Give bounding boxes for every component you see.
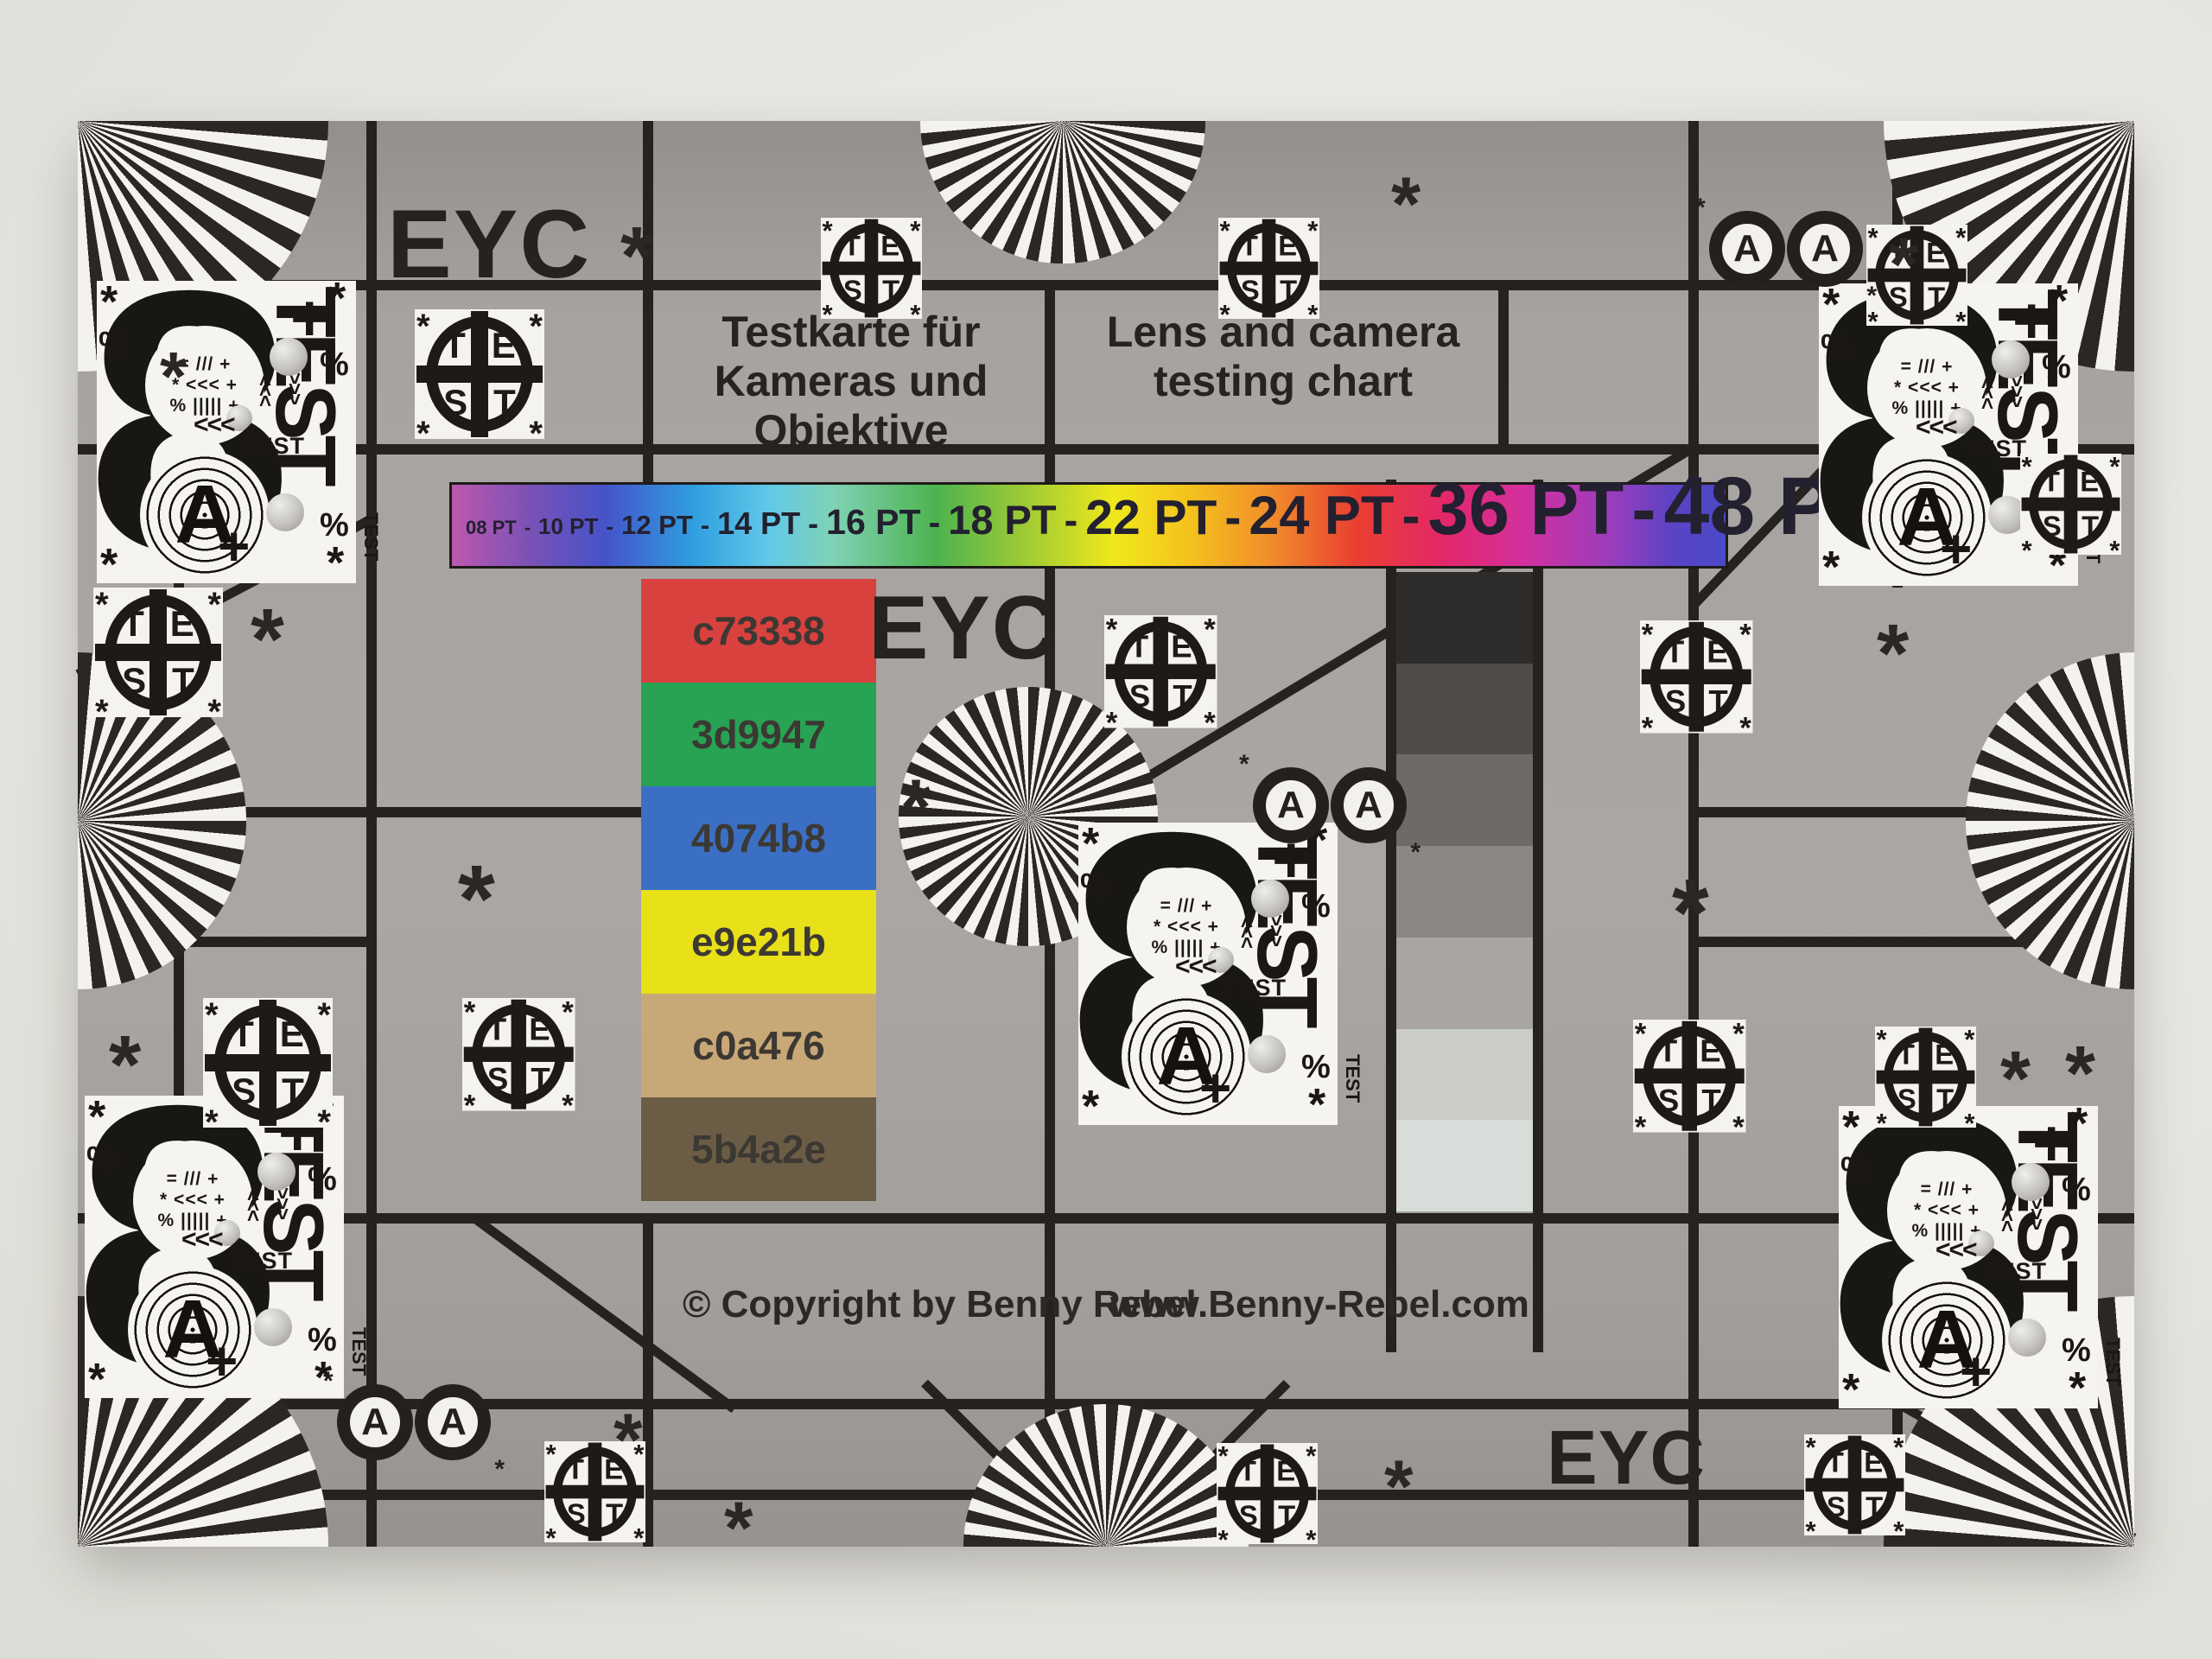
asterisk-glyph: *	[2050, 289, 2068, 315]
grid-line-v	[1688, 121, 1699, 1547]
grid-line-v	[1533, 480, 1543, 1352]
gray-ball-icon	[2008, 1319, 2046, 1357]
test-small-label: TEST	[1964, 435, 2027, 462]
chevrons-glyph: <<<	[181, 1225, 222, 1255]
concentric-rings: A	[128, 1265, 257, 1395]
color-swatch: c73338	[641, 579, 876, 683]
title-english-line2: testing chart	[1080, 357, 1486, 406]
percent-glyph: %	[1840, 1151, 1870, 1188]
asterisk-glyph: *	[100, 289, 118, 316]
gray-step	[1396, 1120, 1533, 1211]
asterisk-glyph: *	[724, 1507, 753, 1552]
pt-label: 16 PT	[826, 502, 920, 543]
asterisk-glyph: *	[1822, 292, 1840, 319]
asterisk-glyph: *	[1822, 555, 1840, 582]
edge-fan-icon	[920, 121, 1205, 264]
plus-glyph: +	[206, 1339, 238, 1383]
asterisk-glyph: *	[1391, 181, 1421, 227]
asterisk-glyph: *	[109, 1040, 141, 1090]
test-block-8-center: 8 = /// + * <<< + % ||||| + A TEST TEST …	[1078, 823, 1338, 1125]
micro-pattern: = /// +	[167, 1170, 219, 1189]
concentric-rings: A	[1862, 453, 1992, 582]
test-chart: 08 PT- 10 PT- 12 PT- 14 PT- 16 PT- 18 PT…	[78, 121, 2134, 1547]
test-small-label: TEST	[1984, 1258, 2047, 1285]
plus-glyph: +	[290, 293, 328, 346]
grid-line-h	[78, 1213, 2134, 1224]
asterisk-glyph: *	[613, 1419, 642, 1464]
micro-pattern: * <<< +	[1914, 1201, 1980, 1220]
test-block-8: 8 = /// + * <<< + % ||||| + A TEST TEST …	[1839, 1106, 2098, 1408]
color-swatch: c0a476	[641, 994, 876, 1097]
asterisk-glyph: *	[328, 286, 346, 313]
gray-ball-icon	[254, 1308, 292, 1346]
eyc-label-center: EYC	[868, 577, 1058, 680]
title-german-line2: Kameras und Objektive	[665, 357, 1037, 455]
test-side-label: TEST	[359, 512, 382, 561]
percent-glyph: %	[86, 1141, 116, 1178]
gray-ball-icon	[1992, 340, 2030, 378]
eyc-label-top: EYC	[387, 188, 591, 300]
title-english: Lens and camera testing chart	[1080, 308, 1486, 406]
chevrons-glyph: <<<	[2005, 377, 2030, 408]
micro-pattern: = /// +	[1921, 1180, 1974, 1199]
asterisk-glyph: *	[900, 785, 931, 832]
grayscale-step-wedge	[1396, 572, 1533, 1211]
percent-glyph: %	[1301, 888, 1331, 925]
chevrons-glyph: <<<	[1916, 413, 1956, 442]
chevrons-glyph: <<<	[1974, 377, 1999, 408]
double-circle-8a-marker: A A **	[1709, 211, 1865, 290]
edge-fan-icon	[963, 1404, 1249, 1547]
test-side-label: TEST	[347, 1327, 370, 1376]
test-side-label: TEST	[2101, 1338, 2124, 1386]
chevrons-glyph: <<<	[1175, 952, 1216, 982]
plus-glyph: +	[1199, 1066, 1231, 1110]
plus-glyph: +	[218, 524, 250, 569]
asterisk-glyph: *	[1082, 831, 1099, 858]
pt-label: 24 PT	[1249, 485, 1394, 547]
test-circle-marker: TEST****	[1217, 1443, 1318, 1544]
pt-size-labels: 08 PT- 10 PT- 12 PT- 14 PT- 16 PT- 18 PT…	[466, 460, 1719, 554]
micro-pattern: * <<< +	[1894, 378, 1960, 397]
test-small-label: TEST	[230, 1248, 293, 1274]
asterisk-glyph: *	[1877, 629, 1909, 679]
percent-glyph: %	[320, 346, 349, 384]
asterisk-glyph: *	[100, 552, 118, 579]
asterisk-glyph: *	[458, 871, 495, 928]
test-circle-marker: TEST****	[203, 998, 333, 1128]
test-small-label: TEST	[242, 433, 305, 460]
gray-step	[1396, 938, 1533, 1029]
asterisk-glyph: *	[1308, 1092, 1325, 1119]
gray-step	[1396, 1029, 1533, 1121]
gray-step	[1396, 754, 1533, 846]
chevrons-glyph: <<<	[1935, 1236, 1976, 1265]
asterisk-glyph: *	[2069, 1376, 2086, 1402]
double-circle-8a-marker: A A **	[1253, 767, 1408, 847]
asterisk-glyph: *	[88, 1104, 105, 1131]
asterisk-glyph: *	[1889, 242, 1918, 288]
asterisk-glyph: *	[1672, 885, 1709, 942]
color-swatch: 4074b8	[641, 786, 876, 890]
test-small-label: TEST	[1224, 975, 1287, 1001]
gray-step	[1396, 572, 1533, 664]
test-circle-marker: TEST****	[821, 218, 922, 319]
chevrons-glyph: <<<	[194, 410, 234, 440]
grid-line-v	[1386, 480, 1396, 1352]
website-text: www.Benny-Rebel.com	[1110, 1283, 1529, 1326]
pt-label: 14 PT	[717, 505, 800, 542]
font-size-rainbow-bar: 08 PT- 10 PT- 12 PT- 14 PT- 16 PT- 18 PT…	[449, 482, 1728, 569]
gray-ball-icon	[1251, 880, 1289, 918]
title-german: Testkarte für Kameras und Objektive	[665, 308, 1037, 455]
asterisk-glyph: *	[2049, 553, 2066, 580]
asterisk-glyph: *	[620, 232, 652, 282]
asterisk-glyph: *	[251, 613, 284, 665]
test-circle-marker: TEST****	[1104, 615, 1217, 728]
asterisk-glyph: *	[1842, 1115, 1859, 1141]
concentric-rings: A	[1122, 992, 1251, 1122]
percent-glyph: %	[308, 1161, 337, 1198]
asterisk-glyph: *	[327, 550, 344, 577]
test-circle-marker: TEST****	[1640, 620, 1753, 734]
percent-glyph: %	[1080, 868, 1109, 905]
test-circle-marker: TEST****	[462, 998, 575, 1111]
gray-step	[1396, 664, 1533, 755]
eyc-label-bottom: EYC	[1547, 1414, 1706, 1502]
pt-label: 08 PT	[466, 517, 517, 539]
grid-line-v	[1498, 280, 1509, 454]
pt-label: 36 PT	[1427, 467, 1624, 552]
plus-glyph: +	[1940, 527, 1972, 571]
chevrons-glyph: <<<	[1234, 916, 1258, 947]
asterisk-glyph: *	[1842, 1377, 1859, 1404]
chevrons-glyph: <<<	[252, 374, 276, 405]
test-circle-marker: TEST****	[1804, 1434, 1905, 1535]
concentric-rings: A	[1882, 1275, 2012, 1405]
gray-ball-icon	[257, 1153, 296, 1191]
micro-pattern: * <<< +	[1154, 918, 1219, 937]
pt-label: 18 PT	[948, 496, 1056, 543]
micro-pattern: * <<< +	[160, 1191, 226, 1210]
concentric-rings: A	[140, 450, 270, 580]
asterisk-glyph: *	[88, 1367, 105, 1394]
plus-glyph: +	[2012, 296, 2050, 348]
asterisk-glyph: *	[1082, 1094, 1099, 1121]
gray-ball-icon	[266, 493, 304, 531]
chevrons-glyph: <<<	[271, 1189, 296, 1220]
test-circle-marker: TEST****	[93, 588, 223, 717]
chevrons-glyph: <<<	[1265, 916, 1289, 947]
pt-label: 10 PT	[538, 513, 598, 540]
chevrons-glyph: <<<	[283, 374, 308, 405]
test-circle-marker: TEST****	[2020, 454, 2121, 555]
gray-ball-icon	[2012, 1163, 2050, 1201]
test-block-8: 8 = /// + * <<< + % ||||| + A TEST TEST …	[97, 281, 356, 583]
test-circle-marker: TEST****	[415, 309, 544, 439]
chevrons-glyph: <<<	[240, 1189, 264, 1220]
test-circle-marker: TEST****	[1218, 218, 1319, 319]
test-circle-marker: TEST****	[1875, 1027, 1976, 1128]
chevrons-glyph: <<<	[2025, 1199, 2050, 1230]
micro-pattern: = /// +	[1160, 897, 1213, 916]
test-circle-marker: TEST****	[1633, 1020, 1746, 1133]
percent-glyph: %	[99, 326, 128, 363]
chevrons-glyph: <<<	[1994, 1199, 2018, 1230]
color-swatch: 5b4a2e	[641, 1097, 876, 1201]
gray-ball-icon	[270, 338, 308, 376]
double-circle-8a-marker: A A **	[337, 1384, 493, 1464]
pt-label: 22 PT	[1085, 489, 1217, 546]
color-swatch: 3d9947	[641, 683, 876, 786]
asterisk-glyph: *	[1384, 1465, 1413, 1510]
asterisk-glyph: *	[160, 356, 187, 397]
asterisk-glyph: *	[2065, 1051, 2095, 1097]
color-swatch-column: c73338 3d9947 4074b8 e9e21b c0a476 5b4a2…	[641, 579, 876, 1201]
plus-glyph: +	[1960, 1350, 1992, 1394]
asterisk-glyph: *	[2000, 1056, 2031, 1103]
percent-glyph: %	[2042, 349, 2071, 386]
micro-pattern: = /// +	[1901, 358, 1954, 377]
gray-ball-icon	[1248, 1035, 1286, 1073]
percent-glyph: %	[1821, 328, 1850, 365]
test-side-label: TEST	[1341, 1054, 1363, 1103]
percent-glyph: %	[2062, 1172, 2091, 1209]
color-swatch: e9e21b	[641, 890, 876, 994]
pt-label: 12 PT	[621, 510, 693, 541]
plus-glyph: +	[2032, 1118, 2070, 1171]
